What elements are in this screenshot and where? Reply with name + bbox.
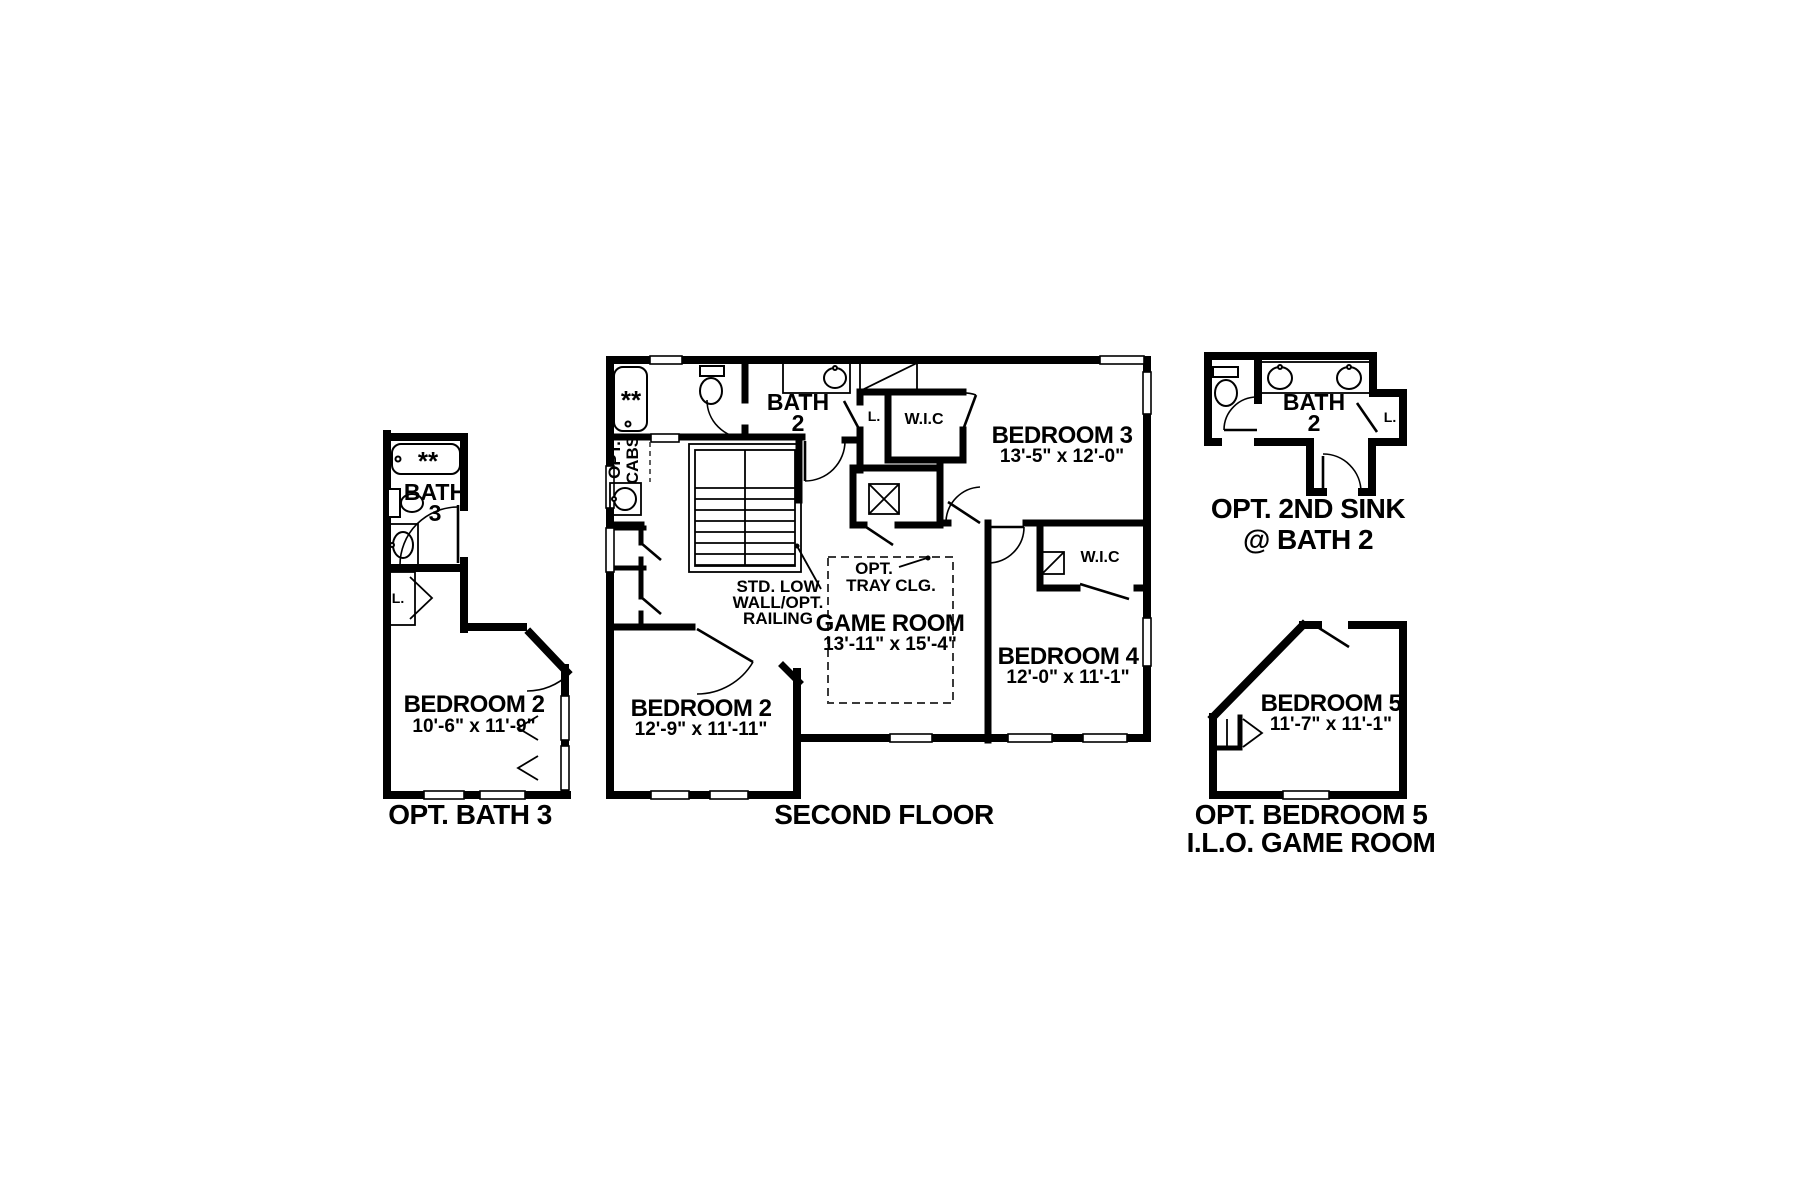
bedroom2-name: BEDROOM 2 xyxy=(404,691,545,718)
window xyxy=(1143,618,1151,666)
tub-stars-label: ** xyxy=(621,385,642,415)
bedroom2-dims: 12'-9" x 11'-11" xyxy=(635,719,768,740)
tub-stars-label: ** xyxy=(418,446,439,476)
toilet-room-door xyxy=(707,400,745,438)
plan-opt-2nd-sink: BATH 2 L. OPT. 2ND SINK @ BATH 2 xyxy=(1208,356,1405,555)
window xyxy=(1008,734,1052,742)
tray-note-line2: TRAY CLG. xyxy=(846,576,936,595)
tray-note-leader xyxy=(899,556,931,568)
opt-bedroom5-caption-line2: I.L.O. GAME ROOM xyxy=(1187,827,1436,858)
stair-note-line3: RAILING xyxy=(743,609,813,628)
linen-label: L. xyxy=(868,408,880,424)
bath3-label-line2: 3 xyxy=(429,500,442,526)
bedroom2-door xyxy=(697,629,753,694)
bedroom3-name: BEDROOM 3 xyxy=(992,422,1133,449)
opt-cabs-label-line1: OPT. xyxy=(605,441,624,479)
bedroom2-dims: 10'-6" x 11'-9" xyxy=(412,716,535,737)
bedroom4-door xyxy=(988,527,1024,563)
window xyxy=(561,696,569,740)
window xyxy=(424,791,464,799)
hall-closet-door xyxy=(641,543,661,560)
bedroom2-name: BEDROOM 2 xyxy=(631,695,772,722)
window xyxy=(1143,372,1151,414)
toilet-icon xyxy=(1213,367,1238,406)
window xyxy=(480,791,525,799)
window xyxy=(650,356,682,364)
bath2-entry-door xyxy=(1323,454,1361,492)
bath2-label-line2: 2 xyxy=(1308,410,1321,436)
bedroom4-dims: 12'-0" x 11'-1" xyxy=(1006,667,1129,688)
floorplan-drawing: BATH 3 ** L. BEDROOM 2 10'-6" x 11'-9" O… xyxy=(0,0,1800,1200)
floorplan-page: BATH 3 ** L. BEDROOM 2 10'-6" x 11'-9" O… xyxy=(0,0,1800,1200)
plan-opt-bedroom5: BEDROOM 5 11'-7" x 11'-1" OPT. BEDROOM 5… xyxy=(1187,625,1436,858)
bath2-door xyxy=(805,441,845,481)
bifold-door-icon xyxy=(410,577,432,619)
linen-label: L. xyxy=(392,590,404,606)
bedroom5-dims: 11'-7" x 11'-1" xyxy=(1270,714,1392,735)
window xyxy=(651,791,689,799)
hall-closet-walls xyxy=(610,528,644,627)
plan-second-floor: ** OPT. CABS BATH 2 L. W.I.C BEDROOM 3 1… xyxy=(605,356,1151,830)
opt-2nd-sink-caption-line2: @ BATH 2 xyxy=(1243,524,1373,555)
opt-cabs-label-line2: CABS xyxy=(623,436,642,484)
wic-label: W.I.C xyxy=(904,411,944,428)
bedroom4-name: BEDROOM 4 xyxy=(998,643,1140,670)
game-room-name: GAME ROOM xyxy=(816,610,965,637)
toilet-icon xyxy=(700,366,724,404)
bedroom3-dims: 13'-5" x 12'-0" xyxy=(1000,446,1124,467)
hall-closet-door xyxy=(641,597,661,614)
linen-label: L. xyxy=(1384,409,1396,425)
window xyxy=(710,791,748,799)
bath2-label-line2: 2 xyxy=(792,410,805,436)
bedroom3-door xyxy=(946,487,980,523)
utility-closet-icon xyxy=(866,484,899,545)
window xyxy=(561,746,569,790)
wic2-label: W.I.C xyxy=(1080,549,1120,566)
window xyxy=(1100,356,1144,364)
cased-opening xyxy=(651,434,679,442)
opt-2nd-sink-caption-line1: OPT. 2ND SINK xyxy=(1211,493,1405,524)
game-room-dims: 13'-11" x 15'-4" xyxy=(823,634,957,655)
linen-closet-door xyxy=(1357,403,1377,432)
window xyxy=(1083,734,1127,742)
stairs-icon xyxy=(689,444,801,572)
opt-bedroom5-caption-line1: OPT. BEDROOM 5 xyxy=(1195,799,1428,830)
bedroom5-door xyxy=(1319,628,1349,647)
bifold-door-icon xyxy=(1243,719,1262,747)
window xyxy=(606,528,614,572)
opt-bath3-caption: OPT. BATH 3 xyxy=(388,799,552,830)
wic2-sliding-door xyxy=(1080,584,1129,599)
plan-opt-bath3: BATH 3 ** L. BEDROOM 2 10'-6" x 11'-9" O… xyxy=(387,434,569,830)
window xyxy=(1283,791,1329,799)
wic-door xyxy=(963,393,976,430)
window xyxy=(890,734,932,742)
attic-access-icon xyxy=(860,363,917,391)
bedroom5-name: BEDROOM 5 xyxy=(1261,690,1402,717)
second-floor-caption: SECOND FLOOR xyxy=(774,799,994,830)
